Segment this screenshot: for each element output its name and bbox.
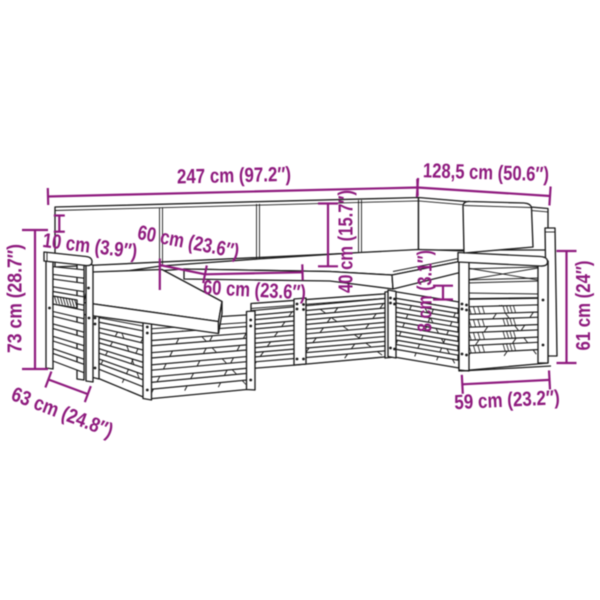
svg-text:8 cm (3.1″): 8 cm (3.1″) <box>414 250 437 332</box>
svg-text:61 cm (24″): 61 cm (24″) <box>572 261 595 351</box>
svg-text:73 cm (28.7″): 73 cm (28.7″) <box>4 244 27 353</box>
svg-text:128,5 cm (50.6″): 128,5 cm (50.6″) <box>423 159 550 186</box>
svg-text:247 cm (97.2″): 247 cm (97.2″) <box>177 163 291 189</box>
svg-text:40 cm (15.7″): 40 cm (15.7″) <box>335 190 358 293</box>
